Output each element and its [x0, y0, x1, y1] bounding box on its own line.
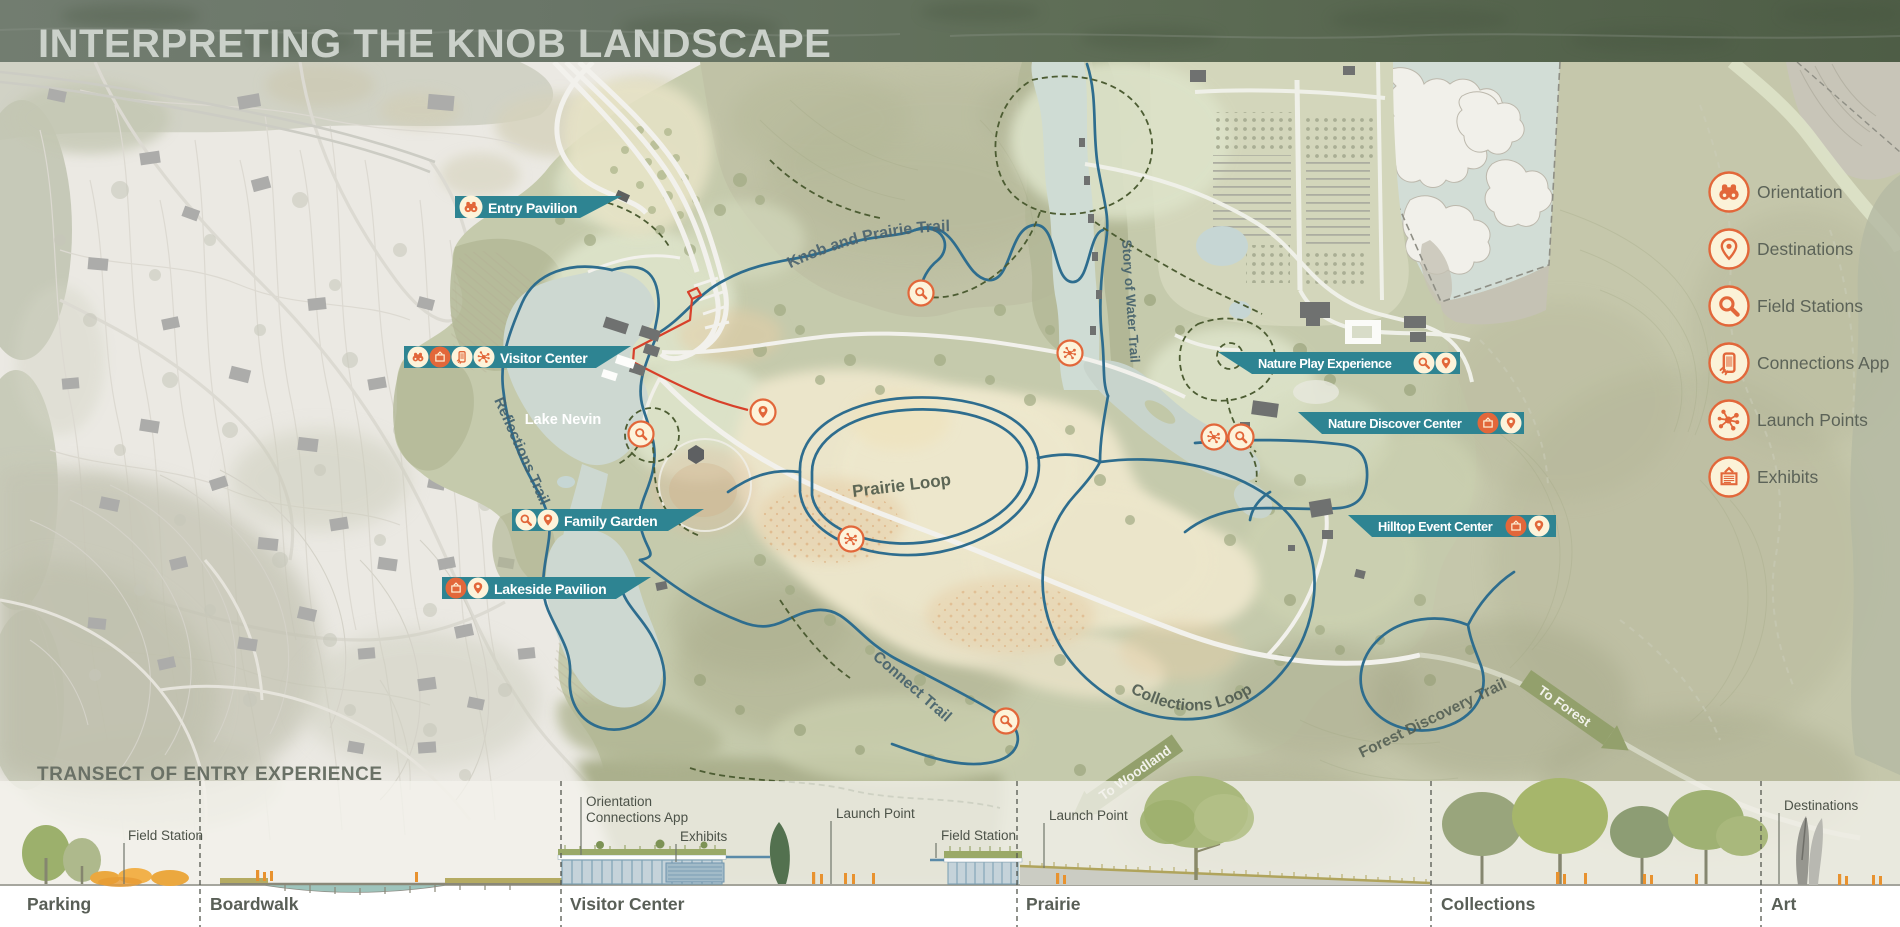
svg-text:Connections App: Connections App — [586, 810, 688, 825]
svg-text:Exhibits: Exhibits — [680, 829, 728, 844]
svg-text:Launch Points: Launch Points — [1757, 410, 1868, 430]
svg-text:Nature Discover Center: Nature Discover Center — [1328, 416, 1462, 431]
svg-text:Collections: Collections — [1441, 894, 1536, 914]
svg-text:Visitor Center: Visitor Center — [570, 894, 685, 914]
svg-text:Parking: Parking — [27, 894, 91, 914]
svg-text:Lakeside Pavilion: Lakeside Pavilion — [494, 581, 606, 597]
svg-text:Launch Point: Launch Point — [1049, 808, 1128, 823]
svg-text:Orientation: Orientation — [586, 794, 652, 809]
svg-text:Prairie: Prairie — [1026, 894, 1081, 914]
svg-text:Hilltop Event Center: Hilltop Event Center — [1378, 519, 1493, 534]
svg-text:Visitor Center: Visitor Center — [500, 350, 588, 366]
svg-text:Orientation: Orientation — [1757, 182, 1843, 202]
svg-text:Destinations: Destinations — [1784, 798, 1859, 813]
svg-text:TRANSECT OF ENTRY EXPERIENCE: TRANSECT OF ENTRY EXPERIENCE — [37, 764, 383, 785]
svg-text:Family Garden: Family Garden — [564, 513, 657, 529]
svg-text:INTERPRETING THE KNOB LANDSCAP: INTERPRETING THE KNOB LANDSCAPE — [38, 22, 831, 66]
svg-text:Field Station: Field Station — [941, 828, 1016, 843]
svg-text:Destinations: Destinations — [1757, 239, 1854, 259]
svg-text:Field Stations: Field Stations — [1757, 296, 1863, 316]
svg-text:Boardwalk: Boardwalk — [210, 894, 299, 914]
svg-text:Lake Nevin: Lake Nevin — [525, 412, 602, 428]
svg-text:Connections App: Connections App — [1757, 353, 1889, 373]
svg-text:Nature Play Experience: Nature Play Experience — [1258, 356, 1392, 371]
svg-text:Exhibits: Exhibits — [1757, 467, 1819, 487]
svg-text:Field Station: Field Station — [128, 828, 203, 843]
svg-text:Launch Point: Launch Point — [836, 806, 915, 821]
svg-text:Entry Pavilion: Entry Pavilion — [488, 200, 577, 216]
svg-text:Art: Art — [1771, 894, 1796, 914]
